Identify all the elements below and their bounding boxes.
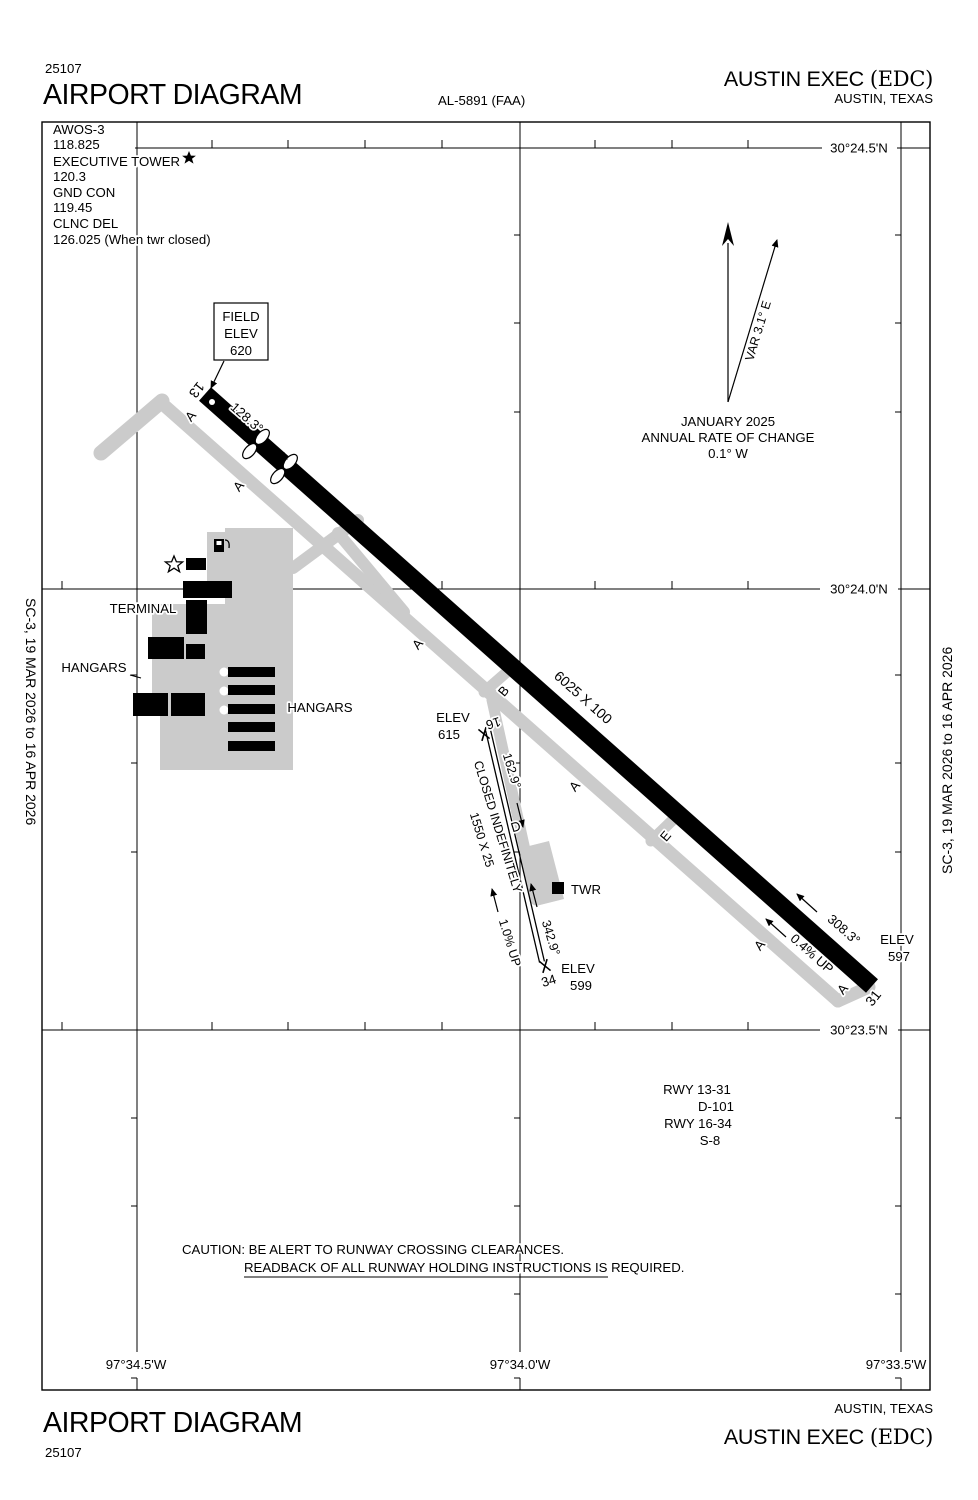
- hangar-row-4: [228, 722, 275, 732]
- magnetic-north-arrow: [728, 240, 777, 402]
- svg-text:FIELD: FIELD: [222, 309, 259, 324]
- elev-31-value: 597: [888, 949, 910, 964]
- tower-square: [552, 882, 564, 894]
- lat-label-2: 30°24.0'N: [830, 582, 888, 597]
- frequency-block: AWOS-3 118.825 EXECUTIVE TOWER 120.3 GND…: [53, 122, 211, 247]
- margin-note-right: SC-3, 19 MAR 2026 to 16 APR 2026: [939, 647, 955, 874]
- svg-text:118.825: 118.825: [53, 137, 100, 152]
- margin-note-left: SC-3, 19 MAR 2026 to 16 APR 2026: [23, 598, 39, 825]
- svg-text:CAUTION: BE ALERT TO RUNWAY CR: CAUTION: BE ALERT TO RUNWAY CROSSING CLE…: [182, 1242, 564, 1257]
- airport-title: AUSTIN EXEC(EDC): [724, 67, 933, 91]
- caution-note: CAUTION: BE ALERT TO RUNWAY CROSSING CLE…: [182, 1242, 684, 1277]
- elev-34-value: 599: [570, 978, 592, 993]
- threshold-dot-13: [209, 399, 215, 405]
- field-elev-callout: FIELD ELEV 620: [211, 303, 268, 388]
- variation-date: JANUARY 2025: [681, 414, 775, 429]
- lon-label-1: 97°34.5'W: [106, 1357, 167, 1372]
- svg-text:119.45: 119.45: [53, 200, 92, 215]
- runway-number-16: 16: [484, 714, 502, 733]
- svg-text:620: 620: [230, 343, 252, 358]
- heading-31-arrow: [797, 894, 817, 912]
- chart-number-top: 25107: [45, 61, 82, 76]
- svg-text:CLNC DEL: CLNC DEL: [53, 216, 118, 231]
- hangar-row-2: [228, 685, 275, 695]
- procedure-id: AL-5891 (FAA): [438, 93, 525, 108]
- svg-text:S-8: S-8: [700, 1133, 721, 1148]
- tower-star-icon: [182, 151, 196, 164]
- svg-text:126.025 (When twr closed): 126.025 (When twr closed): [53, 232, 211, 247]
- north-variation-arrows: VAR 3.1° E: [722, 222, 777, 402]
- svg-text:AWOS-3: AWOS-3: [53, 122, 105, 137]
- gradient-16-34-arrow: [492, 889, 498, 912]
- apron-notches: [220, 668, 229, 715]
- hangar-row-1: [228, 667, 275, 677]
- svg-text:RWY 16-34: RWY 16-34: [664, 1116, 732, 1131]
- hangar-row-5: [228, 741, 275, 751]
- svg-text:120.3: 120.3: [53, 169, 86, 184]
- city-state-bottom: AUSTIN, TEXAS: [834, 1401, 933, 1416]
- taxiways-and-aprons: [101, 401, 869, 1001]
- elev-16-label: ELEV: [436, 710, 470, 725]
- hangars-west-label: HANGARS: [61, 660, 126, 675]
- lon-label-3: 97°33.5'W: [866, 1357, 927, 1372]
- page-title: AIRPORT DIAGRAM: [43, 79, 302, 111]
- svg-text:RWY 13-31: RWY 13-31: [663, 1082, 731, 1097]
- variation-note: ANNUAL RATE OF CHANGE: [642, 430, 815, 445]
- runway-data-block: RWY 13-31 D-101 RWY 16-34 S-8: [663, 1082, 734, 1148]
- elev-16-value: 615: [438, 727, 460, 742]
- beacon-star-icon: [165, 556, 182, 572]
- footer-title: AIRPORT DIAGRAM: [43, 1407, 302, 1439]
- svg-text:ELEV: ELEV: [224, 326, 258, 341]
- airport-title-bottom: AUSTIN EXEC(EDC): [724, 1425, 933, 1449]
- airport-diagram-chart: 25107 AIRPORT DIAGRAM AL-5891 (FAA) AUST…: [0, 0, 978, 1500]
- elev-31-label: ELEV: [880, 932, 914, 947]
- lat-label-1: 30°24.5'N: [830, 141, 888, 156]
- svg-text:READBACK OF ALL RUNWAY HOLDING: READBACK OF ALL RUNWAY HOLDING INSTRUCTI…: [244, 1260, 684, 1275]
- svg-text:D-101: D-101: [698, 1099, 734, 1114]
- variation-label: VAR 3.1° E: [742, 299, 773, 362]
- hangars-east-label: HANGARS: [287, 700, 352, 715]
- lat-label-3: 30°23.5'N: [830, 1023, 888, 1038]
- runway-number-34: 34: [539, 971, 557, 990]
- svg-text:GND CON: GND CON: [53, 185, 115, 200]
- runup-pad-13: [101, 401, 162, 453]
- airport-diagram-page: 25107 AIRPORT DIAGRAM AL-5891 (FAA) AUST…: [0, 0, 978, 1500]
- svg-text:EXECUTIVE TOWER: EXECUTIVE TOWER: [53, 154, 180, 169]
- variation-rate: 0.1° W: [708, 446, 748, 461]
- city-state-top: AUSTIN, TEXAS: [834, 91, 933, 106]
- terminal-label: TERMINAL: [110, 601, 177, 616]
- lon-label-2: 97°34.0'W: [490, 1357, 551, 1372]
- chart-number-bottom: 25107: [45, 1445, 82, 1460]
- elev-34-label: ELEV: [561, 961, 595, 976]
- hangar-row-3: [228, 704, 275, 714]
- tower-label: TWR: [571, 882, 601, 897]
